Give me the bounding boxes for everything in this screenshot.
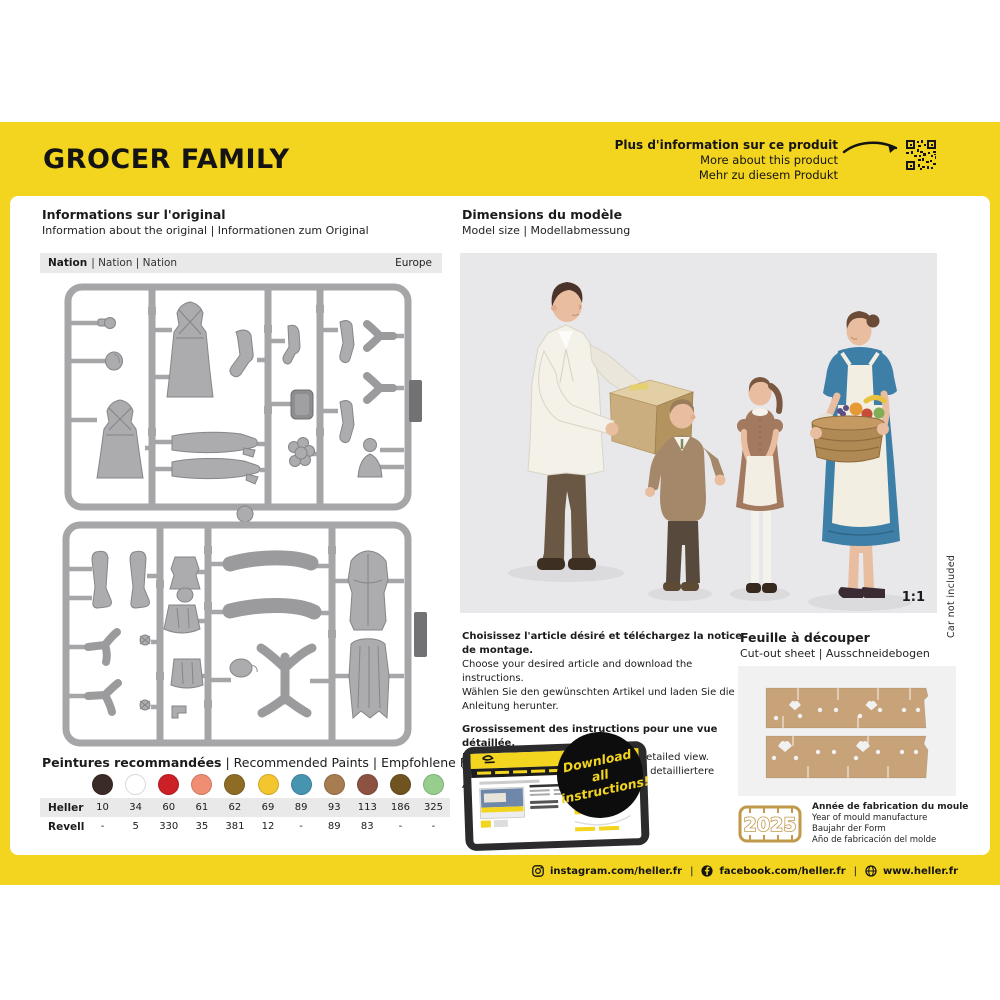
mould-es: Año de fabricación del molde — [812, 835, 968, 846]
dimensions-title: Dimensions du modèle — [462, 207, 622, 222]
heller-value: 69 — [251, 802, 284, 813]
sprues-diagram — [48, 280, 448, 750]
globe-icon — [865, 865, 877, 877]
arrow-to-qr-icon — [842, 136, 904, 166]
mould-year-mark: 2025 — [738, 803, 802, 845]
nation-value: Europe — [395, 257, 432, 269]
cutout-strip-1 — [766, 688, 928, 728]
revell-value: - — [384, 821, 417, 832]
nation-label-translations: | Nation | Nation — [91, 257, 177, 269]
more-info-fr: Plus d'information sur ce produit — [615, 137, 838, 153]
page-title: GROCER FAMILY — [43, 144, 290, 175]
heller-value: 34 — [119, 802, 152, 813]
mould-de: Baujahr der Form — [812, 824, 968, 835]
paints-title: Peintures recommandées | Recommended Pai… — [42, 755, 502, 770]
cutout-strip-2 — [766, 736, 928, 778]
paint-swatch — [191, 774, 212, 795]
paint-swatch — [390, 774, 411, 795]
family-illustration-box: 1:1 — [460, 253, 937, 613]
dl-p1-fr: Choisissez l'article désiré et télécharg… — [462, 630, 746, 658]
cutout-sheet-preview — [738, 666, 956, 796]
website-url: www.heller.fr — [883, 866, 958, 877]
sprue-a-parts — [97, 302, 382, 484]
paint-swatch — [324, 774, 345, 795]
nation-row: Nation | Nation | Nation Europe — [40, 253, 442, 273]
facebook-icon — [701, 865, 713, 877]
heller-value: 89 — [285, 802, 318, 813]
revell-row-label: Revell — [40, 821, 86, 833]
heller-row-label: Heller — [40, 802, 86, 814]
revell-value: 83 — [351, 821, 384, 832]
original-info-subtitle: Information about the original | Informa… — [42, 224, 369, 237]
heller-value: 186 — [384, 802, 417, 813]
heller-value: 10 — [86, 802, 119, 813]
paint-swatch — [291, 774, 312, 795]
heller-value: 62 — [218, 802, 251, 813]
instagram-icon — [532, 865, 544, 877]
mould-year: 2025 — [744, 814, 797, 836]
revell-value: - — [417, 821, 450, 832]
dl-p1-de: Wählen Sie den gewünschten Artikel und l… — [462, 686, 746, 714]
revell-value: - — [285, 821, 318, 832]
heller-value: 93 — [318, 802, 351, 813]
scale-label: 1:1 — [902, 590, 925, 605]
revell-row: Revell - 5 330 35 381 12 - 89 83 - - — [40, 817, 450, 836]
sprue-a-limb-parts — [367, 324, 393, 400]
heller-row: Heller 10 34 60 61 62 69 89 93 113 186 3… — [40, 798, 450, 817]
heller-value: 60 — [152, 802, 185, 813]
revell-value: 89 — [318, 821, 351, 832]
heller-value: 325 — [417, 802, 450, 813]
car-not-included-note: Car not included — [946, 538, 957, 638]
mould-en: Year of mould manufacture — [812, 813, 968, 824]
more-info-en: More about this product — [615, 153, 838, 168]
sprue-b-tag — [414, 612, 427, 657]
revell-value: 330 — [152, 821, 185, 832]
sprue-a-tag — [409, 380, 422, 422]
family-illustration — [460, 253, 937, 613]
heller-value: 61 — [185, 802, 218, 813]
revell-value: 381 — [218, 821, 251, 832]
cutout-subtitle: Cut-out sheet | Ausschneidebogen — [740, 647, 930, 660]
original-info-title: Informations sur l'original — [42, 207, 226, 222]
revell-value: 5 — [119, 821, 152, 832]
mould-year-text: Année de fabrication du moule Year of mo… — [812, 802, 968, 846]
revell-value: - — [86, 821, 119, 832]
paint-swatch — [423, 774, 444, 795]
dimensions-subtitle: Model size | Modellabmessung — [462, 224, 630, 237]
paints-title-fr: Peintures recommandées — [42, 755, 222, 770]
dl-p1-en: Choose your desired article and download… — [462, 658, 746, 686]
heller-value: 113 — [351, 802, 384, 813]
paint-swatch — [125, 774, 146, 795]
qr-code — [906, 140, 936, 174]
paint-swatch — [224, 774, 245, 795]
revell-value: 35 — [185, 821, 218, 832]
paint-swatch-row — [40, 771, 450, 798]
paints-table: Heller 10 34 60 61 62 69 89 93 113 186 3… — [40, 771, 450, 836]
sprue-b-parts — [92, 551, 389, 718]
footer-separator: | — [690, 866, 693, 877]
nation-label: Nation — [48, 257, 87, 269]
cutout-title: Feuille à découper — [740, 630, 870, 645]
footer-separator: | — [854, 866, 857, 877]
paint-swatch — [92, 774, 113, 795]
footer-links: instagram.com/heller.fr | facebook.com/h… — [532, 858, 958, 884]
paint-swatch — [258, 774, 279, 795]
facebook-url: facebook.com/heller.fr — [719, 866, 845, 877]
paint-swatch — [357, 774, 378, 795]
instagram-url: instagram.com/heller.fr — [550, 866, 682, 877]
mould-fr: Année de fabrication du moule — [812, 802, 968, 813]
more-info-block: Plus d'information sur ce produit More a… — [615, 137, 838, 183]
paint-swatch — [158, 774, 179, 795]
revell-value: 12 — [251, 821, 284, 832]
more-info-de: Mehr zu diesem Produkt — [615, 168, 838, 183]
sprue-b-limb-parts — [88, 558, 314, 713]
